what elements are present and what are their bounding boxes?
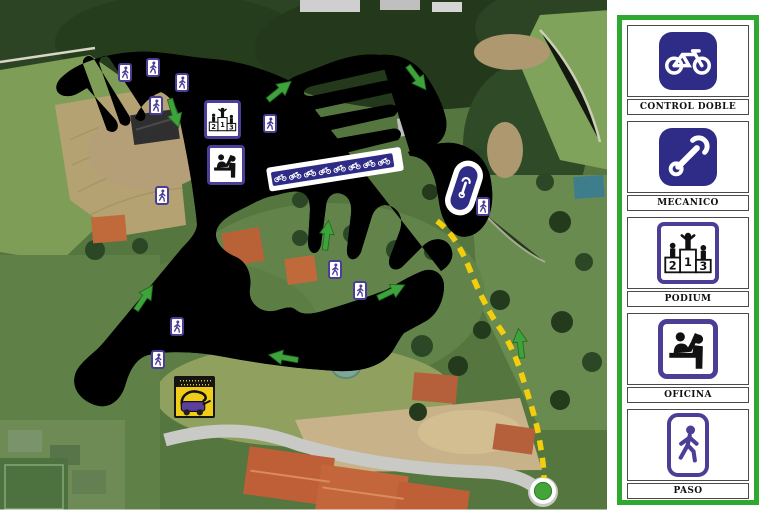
podium-number-3: 3 bbox=[699, 259, 707, 273]
podium-icon: 2 1 3 bbox=[657, 222, 719, 284]
paso-marker bbox=[151, 350, 165, 369]
legend-icon-mecanico bbox=[627, 121, 749, 193]
pedestrian-icon bbox=[153, 352, 163, 368]
pedestrian-icon bbox=[148, 60, 158, 76]
legend-icon-control-doble bbox=[627, 25, 749, 97]
pedestrian-icon bbox=[265, 116, 275, 132]
podium-number-2: 2 bbox=[669, 258, 677, 272]
pedestrian-icon bbox=[478, 199, 488, 215]
wrench-icon bbox=[659, 128, 717, 186]
legend-icon-oficina bbox=[627, 313, 749, 385]
legend-label-oficina: OFICINA bbox=[627, 387, 749, 403]
paso-marker bbox=[476, 197, 490, 216]
podium-map-marker: 2 1 3 bbox=[204, 100, 241, 139]
office-desk-icon bbox=[212, 151, 240, 179]
podium-number-2: 2 bbox=[211, 123, 216, 131]
paso-marker bbox=[170, 317, 184, 336]
course-map: 2 1 3 bbox=[0, 0, 610, 514]
legend-icon-podium: 2 1 3 bbox=[627, 217, 749, 289]
paso-marker bbox=[118, 63, 132, 82]
mower-sign-header bbox=[176, 378, 213, 387]
pedestrian-icon bbox=[177, 75, 187, 91]
paso-marker bbox=[175, 73, 189, 92]
paso-marker bbox=[146, 58, 160, 77]
bicycle-icon bbox=[659, 32, 717, 90]
paso-marker bbox=[155, 186, 169, 205]
legend-label-paso: PASO bbox=[627, 483, 749, 499]
podium-number-1: 1 bbox=[684, 255, 692, 269]
satellite-background bbox=[0, 0, 610, 514]
legend-label-mecanico: MECANICO bbox=[627, 195, 749, 211]
paso-marker bbox=[353, 281, 367, 300]
legend-frame: CONTROL DOBLE MECANICO bbox=[617, 15, 759, 505]
pedestrian-icon bbox=[157, 188, 167, 204]
paso-marker bbox=[263, 114, 277, 133]
legend-label-control-doble: CONTROL DOBLE bbox=[627, 99, 749, 115]
mower-icon bbox=[175, 387, 214, 416]
start-dot-icon bbox=[530, 478, 556, 504]
pedestrian-icon bbox=[667, 413, 709, 477]
pedestrian-icon bbox=[355, 283, 365, 299]
office-desk-icon bbox=[658, 319, 718, 379]
podium-icon: 2 1 3 bbox=[208, 106, 237, 133]
legend-icon-paso bbox=[627, 409, 749, 481]
office-map-marker bbox=[207, 145, 245, 185]
pedestrian-icon bbox=[120, 65, 130, 81]
legend-panel: CONTROL DOBLE MECANICO bbox=[607, 0, 768, 514]
legend-label-podium: PODIUM bbox=[627, 291, 749, 307]
podium-number-1: 1 bbox=[220, 121, 225, 129]
paso-marker bbox=[328, 260, 342, 279]
mower-map-marker bbox=[174, 376, 215, 418]
pedestrian-icon bbox=[172, 319, 182, 335]
paso-marker bbox=[149, 96, 163, 115]
pedestrian-icon bbox=[151, 98, 161, 114]
course-map-poster: 2 1 3 bbox=[0, 0, 768, 514]
pedestrian-icon bbox=[330, 262, 340, 278]
podium-number-3: 3 bbox=[229, 123, 234, 131]
